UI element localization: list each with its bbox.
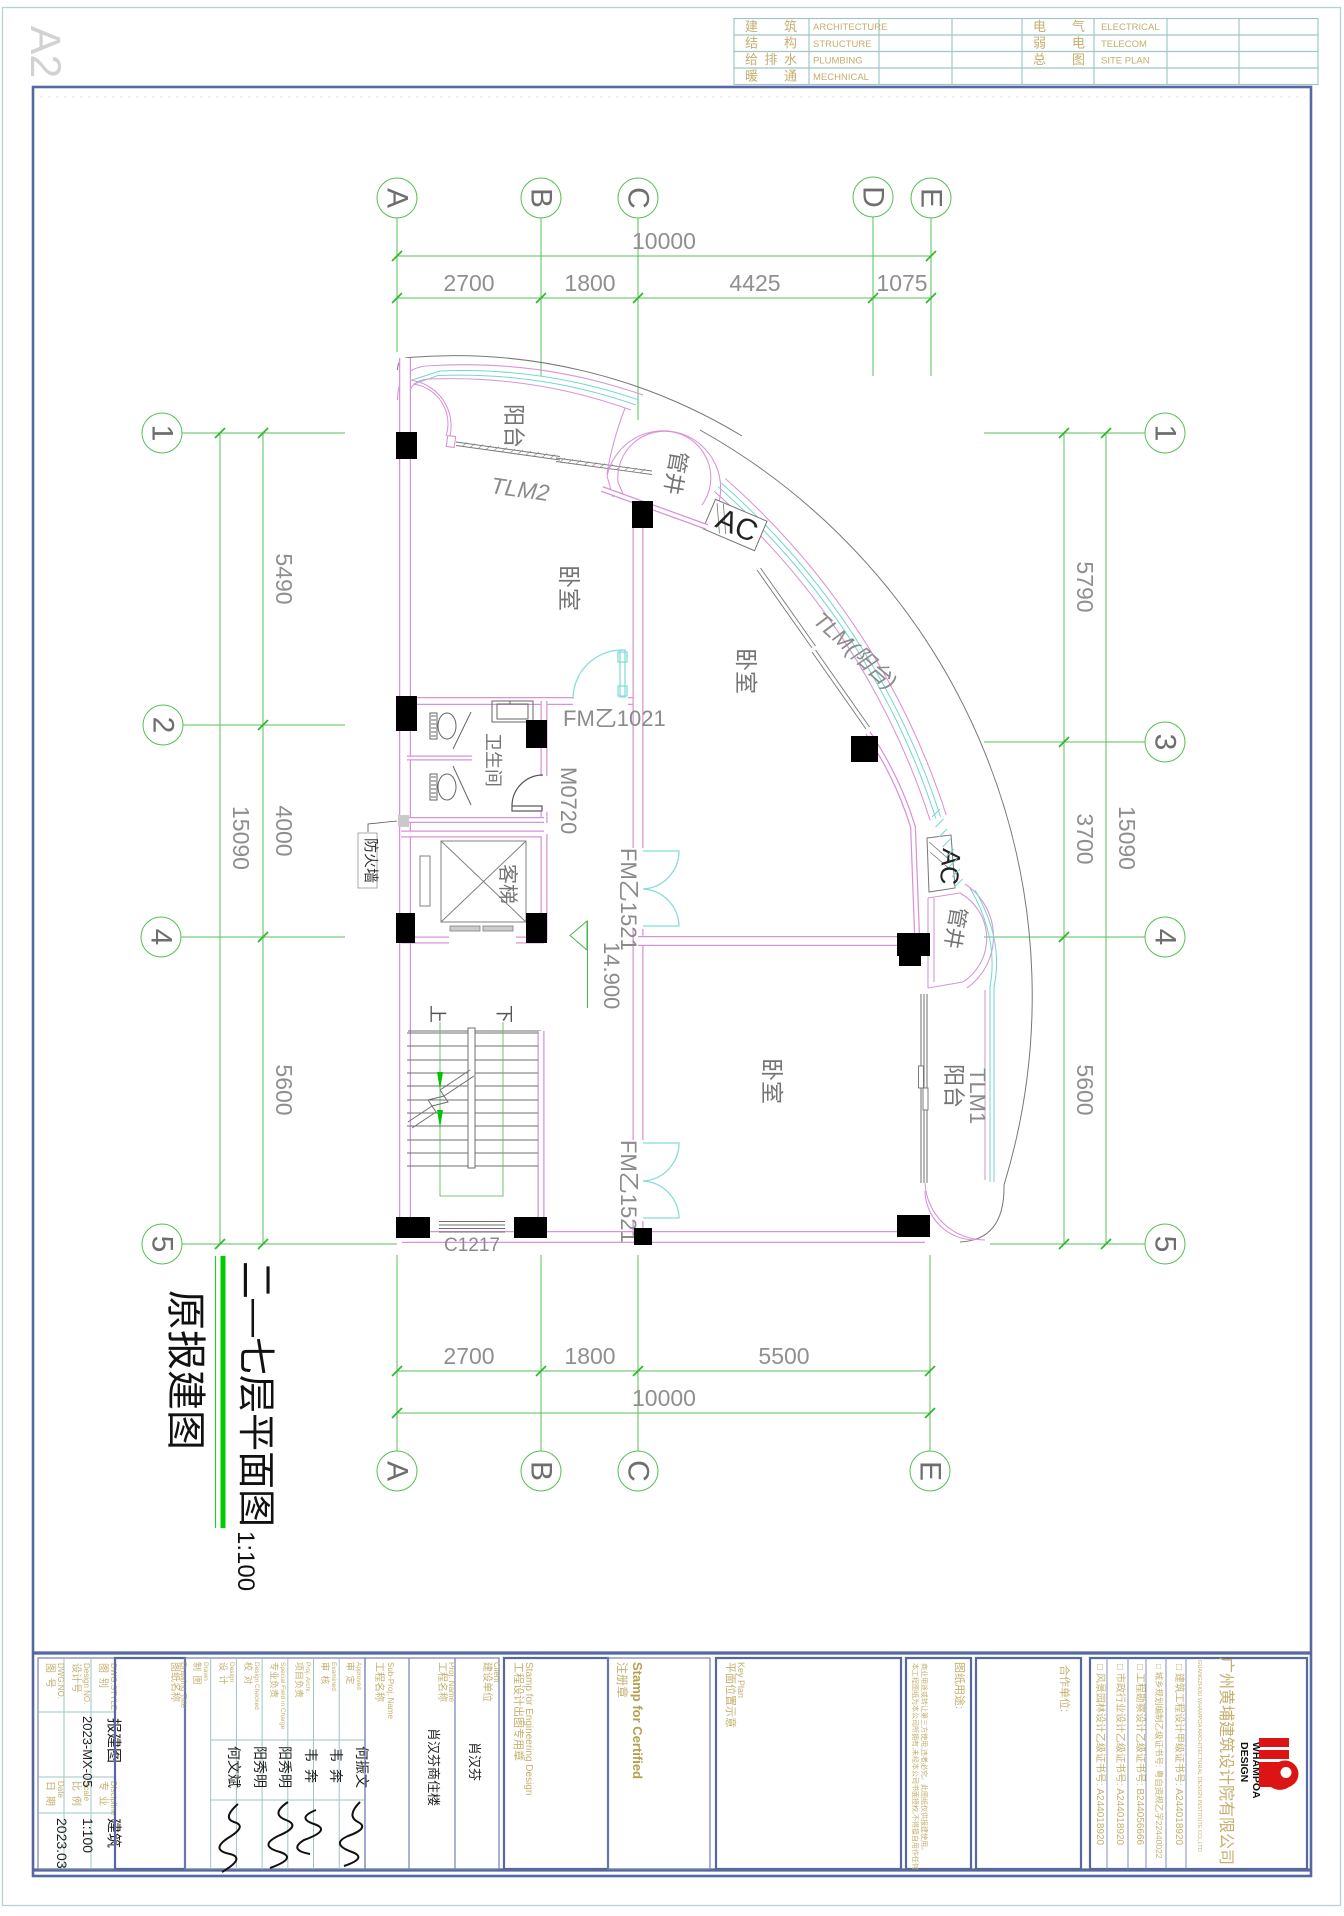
- svg-text:DESIGN: DESIGN: [1238, 1742, 1250, 1782]
- svg-text:建筑: 建筑: [105, 1818, 122, 1848]
- svg-text:阳秀明: 阳秀明: [252, 1746, 268, 1788]
- svg-text:SITE PLAN: SITE PLAN: [1101, 56, 1150, 67]
- svg-text:肖汉芬商住楼: 肖汉芬商住楼: [426, 1728, 441, 1806]
- svg-text:MECHNICAL: MECHNICAL: [813, 72, 869, 83]
- svg-text:A: A: [381, 1461, 414, 1481]
- svg-text:5: 5: [146, 1236, 179, 1253]
- svg-text:Proj. Archi.: Proj. Archi.: [304, 1662, 311, 1694]
- svg-text:Drawing Title: Drawing Title: [179, 1662, 188, 1709]
- svg-text:弱 电: 弱 电: [1033, 36, 1085, 51]
- svg-text:Proj. Name: Proj. Name: [447, 1662, 456, 1703]
- svg-text:图纸用途:: 图纸用途:: [953, 1662, 967, 1709]
- svg-text:5: 5: [1149, 1236, 1182, 1253]
- svg-text:Key Plan: Key Plan: [736, 1662, 746, 1698]
- svg-text:5790: 5790: [1072, 561, 1098, 612]
- svg-text:10000: 10000: [632, 1385, 696, 1411]
- svg-text:M0720: M0720: [556, 767, 581, 834]
- svg-text:15090: 15090: [1114, 806, 1140, 870]
- svg-text:Design NO.: Design NO.: [82, 1663, 91, 1704]
- svg-text:4: 4: [145, 929, 178, 946]
- svg-text:1: 1: [146, 425, 179, 442]
- svg-text:阳秀明: 阳秀明: [277, 1746, 293, 1788]
- svg-text:制 图: 制 图: [192, 1662, 203, 1685]
- svg-text:Drawn: Drawn: [202, 1662, 209, 1681]
- svg-text:卧室: 卧室: [733, 648, 759, 694]
- svg-text:卫生间: 卫生间: [483, 733, 503, 787]
- svg-text:□ 建筑工程设计甲级证书号: A244018920: □ 建筑工程设计甲级证书号: A244018920: [1173, 1664, 1186, 1846]
- svg-text:二—七层平面图: 二—七层平面图: [234, 1261, 276, 1527]
- svg-text:本工程图纸为本公司所拥有,未经本公司书面授权,不得擅自用作任: 本工程图纸为本公司所拥有,未经本公司书面授权,不得擅自用作任何: [911, 1663, 920, 1870]
- svg-text:客梯: 客梯: [496, 864, 519, 904]
- svg-text:1075: 1075: [876, 270, 927, 296]
- svg-text:PLUMBING: PLUMBING: [813, 56, 863, 67]
- svg-text:图 别: 图 别: [97, 1663, 109, 1688]
- svg-text:审 定: 审 定: [345, 1662, 356, 1685]
- svg-text:10000: 10000: [632, 228, 696, 254]
- svg-text:阳台: 阳台: [501, 404, 526, 448]
- svg-text:5500: 5500: [758, 1343, 809, 1369]
- svg-text:4: 4: [1149, 929, 1182, 946]
- svg-text:给 排 水: 给 排 水: [745, 52, 797, 67]
- svg-text:项目负责: 项目负责: [294, 1662, 305, 1698]
- svg-text:原报建图: 原报建图: [163, 1290, 207, 1450]
- svg-text:专业负责: 专业负责: [269, 1662, 280, 1698]
- svg-text:E: E: [914, 1461, 947, 1481]
- svg-text:1800: 1800: [564, 270, 615, 296]
- svg-text:FM乙1021: FM乙1021: [563, 706, 666, 731]
- svg-text:TLM1: TLM1: [965, 1068, 990, 1124]
- svg-text:报建图: 报建图: [105, 1718, 122, 1763]
- svg-text:15090: 15090: [228, 806, 254, 870]
- svg-text:上: 上: [427, 1005, 447, 1023]
- svg-text:商业用途或转让第三方使用,违者必究。此图纸仅供报建使用。: 商业用途或转让第三方使用,违者必究。此图纸仅供报建使用。: [920, 1663, 929, 1854]
- svg-text:Examined: Examined: [330, 1662, 337, 1691]
- svg-text:电 气: 电 气: [1033, 19, 1085, 34]
- svg-text:1: 1: [1149, 425, 1182, 442]
- svg-text:平面位置示意: 平面位置示意: [724, 1662, 738, 1728]
- svg-text:C: C: [622, 187, 655, 209]
- svg-text:工程名称: 工程名称: [373, 1662, 386, 1702]
- svg-text:4425: 4425: [729, 270, 780, 296]
- svg-text:A2: A2: [21, 26, 69, 79]
- svg-text:ELECTRICAL: ELECTRICAL: [1101, 22, 1160, 33]
- svg-text:AC: AC: [934, 847, 967, 886]
- svg-text:GUANGZHOU WHAMPOA ARCHITECTURA: GUANGZHOU WHAMPOA ARCHITECTURAL DESIGN I…: [1196, 1660, 1202, 1852]
- svg-text:审 核: 审 核: [320, 1662, 331, 1685]
- svg-text:5600: 5600: [1072, 1064, 1098, 1115]
- svg-text:卧室: 卧室: [556, 565, 582, 611]
- svg-text:DWG.NO.: DWG.NO.: [56, 1663, 65, 1699]
- svg-text:TELECOM: TELECOM: [1101, 39, 1147, 50]
- svg-text:3700: 3700: [1072, 813, 1098, 864]
- svg-text:阳台: 阳台: [941, 1064, 966, 1108]
- svg-text:韦 奔: 韦 奔: [328, 1748, 344, 1783]
- svg-text:Design Checked: Design Checked: [253, 1662, 260, 1710]
- svg-text:C: C: [622, 1460, 655, 1482]
- svg-text:Stamp for Certified: Stamp for Certified: [630, 1662, 645, 1779]
- svg-text:卧室: 卧室: [759, 1058, 785, 1104]
- svg-text:DWG.STYLE: DWG.STYLE: [109, 1663, 118, 1710]
- svg-text:2: 2: [147, 717, 180, 734]
- svg-text:B: B: [525, 1461, 558, 1481]
- svg-text:Sub-Proj. Name: Sub-Proj. Name: [386, 1662, 395, 1719]
- svg-text:5490: 5490: [271, 553, 297, 604]
- svg-text:建 筑: 建 筑: [745, 19, 797, 34]
- svg-text:设 计: 设 计: [218, 1662, 229, 1685]
- svg-text:韦 奔: 韦 奔: [303, 1748, 319, 1783]
- svg-text:Design: Design: [228, 1662, 235, 1683]
- svg-text:STRUCTURE: STRUCTURE: [813, 39, 872, 50]
- svg-text:A: A: [381, 188, 414, 208]
- svg-text:□ 城乡规划编制乙级证书号: 粤自资规乙字22440022: □ 城乡规划编制乙级证书号: 粤自资规乙字22440022: [1154, 1664, 1164, 1859]
- svg-text:Date: Date: [56, 1781, 65, 1798]
- svg-text:防火墙: 防火墙: [362, 838, 379, 883]
- svg-text:Client: Client: [492, 1662, 501, 1683]
- svg-text:FM乙1521: FM乙1521: [616, 848, 641, 951]
- svg-text:总 图: 总 图: [1033, 52, 1085, 67]
- svg-text:D: D: [857, 186, 890, 208]
- svg-text:何文斌: 何文斌: [226, 1746, 242, 1788]
- svg-text:□ 风景园林设计乙级证书号: A244018920: □ 风景园林设计乙级证书号: A244018920: [1094, 1664, 1107, 1846]
- svg-text:校 对: 校 对: [243, 1662, 254, 1685]
- svg-text:注册章: 注册章: [615, 1662, 630, 1698]
- svg-text:2700: 2700: [443, 270, 494, 296]
- svg-text:专 业: 专 业: [97, 1781, 110, 1806]
- svg-text:3: 3: [1149, 734, 1182, 751]
- svg-text:图 号: 图 号: [44, 1663, 56, 1688]
- svg-text:2023-MX-05: 2023-MX-05: [80, 1716, 95, 1788]
- svg-text:Special Field in Charge: Special Field in Charge: [279, 1662, 286, 1730]
- svg-text:结 构: 结 构: [745, 36, 797, 51]
- svg-text:14.900: 14.900: [599, 942, 624, 1009]
- svg-text:何振文: 何振文: [354, 1746, 370, 1788]
- svg-text:暖 通: 暖 通: [745, 69, 797, 84]
- svg-text:5600: 5600: [271, 1064, 297, 1115]
- svg-text:B: B: [525, 188, 558, 208]
- svg-text:日 期: 日 期: [44, 1781, 56, 1806]
- svg-text:FM乙1521: FM乙1521: [616, 1140, 641, 1243]
- svg-text:4000: 4000: [271, 805, 297, 856]
- svg-text:ARCHITECTURE: ARCHITECTURE: [813, 22, 887, 33]
- svg-text:Stamp for Engineering Design: Stamp for Engineering Design: [523, 1662, 534, 1795]
- svg-text:C1217: C1217: [444, 1235, 500, 1256]
- svg-text:设计号: 设计号: [70, 1663, 83, 1693]
- svg-text:Approved: Approved: [355, 1662, 362, 1690]
- svg-text:下: 下: [494, 1005, 514, 1023]
- svg-text:2023.03: 2023.03: [54, 1818, 70, 1869]
- svg-text:1800: 1800: [564, 1343, 615, 1369]
- svg-text:合作单位:: 合作单位:: [1058, 1665, 1072, 1712]
- svg-text:□ 工程勘察设计乙级证书号: B244056666: □ 工程勘察设计乙级证书号: B244056666: [1134, 1664, 1147, 1846]
- svg-text:1:100: 1:100: [80, 1818, 96, 1853]
- svg-text:2700: 2700: [443, 1343, 494, 1369]
- svg-text:广州黄埔建筑设计院有限公司: 广州黄埔建筑设计院有限公司: [1217, 1657, 1235, 1865]
- svg-text:1:100: 1:100: [232, 1531, 259, 1591]
- svg-text:肖汉芬: 肖汉芬: [467, 1742, 482, 1781]
- svg-text:E: E: [915, 188, 948, 208]
- svg-text:□ 市政行业设计乙级证书号: A244018920: □ 市政行业设计乙级证书号: A244018920: [1114, 1664, 1127, 1846]
- svg-text:Discipline: Discipline: [109, 1781, 118, 1816]
